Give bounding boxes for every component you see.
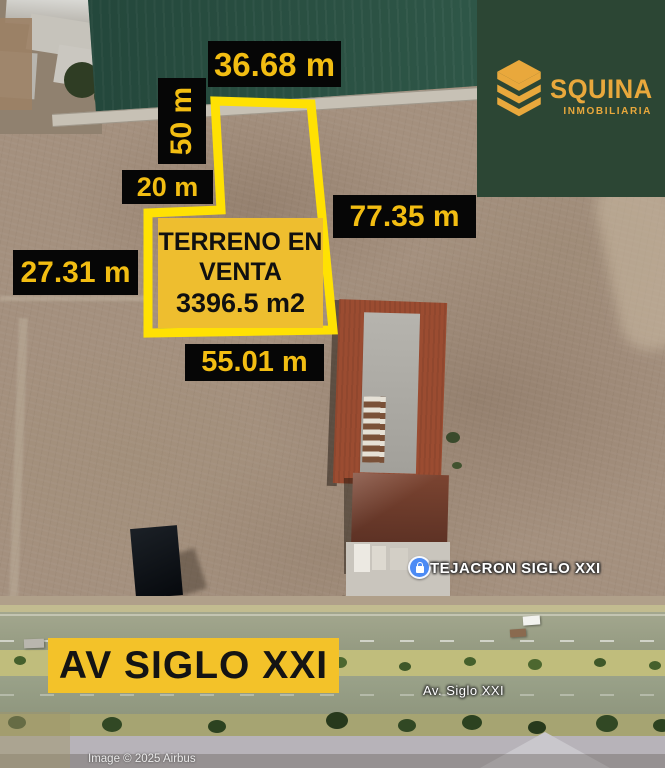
- logo-panel: SQUINA INMOBILIARIA: [477, 0, 665, 197]
- listing-panel: TERRENO EN VENTA 3396.5 m2: [158, 218, 323, 328]
- property-flyer: TEJACRON SIGLO XXI Av. Siglo XXI Image ©…: [0, 0, 665, 768]
- brand-tagline: INMOBILIARIA: [550, 106, 652, 117]
- listing-title-line1: TERRENO EN: [159, 230, 323, 255]
- brand-name: SQUINA: [550, 74, 653, 105]
- avenue-banner: AV SIGLO XXI: [48, 638, 339, 693]
- label-left-width: 27.31 m: [13, 250, 138, 295]
- label-right-depth: 77.35 m: [333, 195, 476, 238]
- label-notch-width: 20 m: [122, 170, 213, 204]
- label-top-width: 36.68 m: [208, 41, 341, 87]
- label-left-depth: 50 m: [158, 78, 206, 164]
- listing-area: 3396.5 m2: [176, 290, 305, 317]
- squina-logo-icon: [490, 58, 548, 120]
- label-bottom-width: 55.01 m: [185, 344, 324, 381]
- listing-title-line2: VENTA: [199, 260, 282, 285]
- label-left-depth-text: 50 m: [167, 87, 197, 155]
